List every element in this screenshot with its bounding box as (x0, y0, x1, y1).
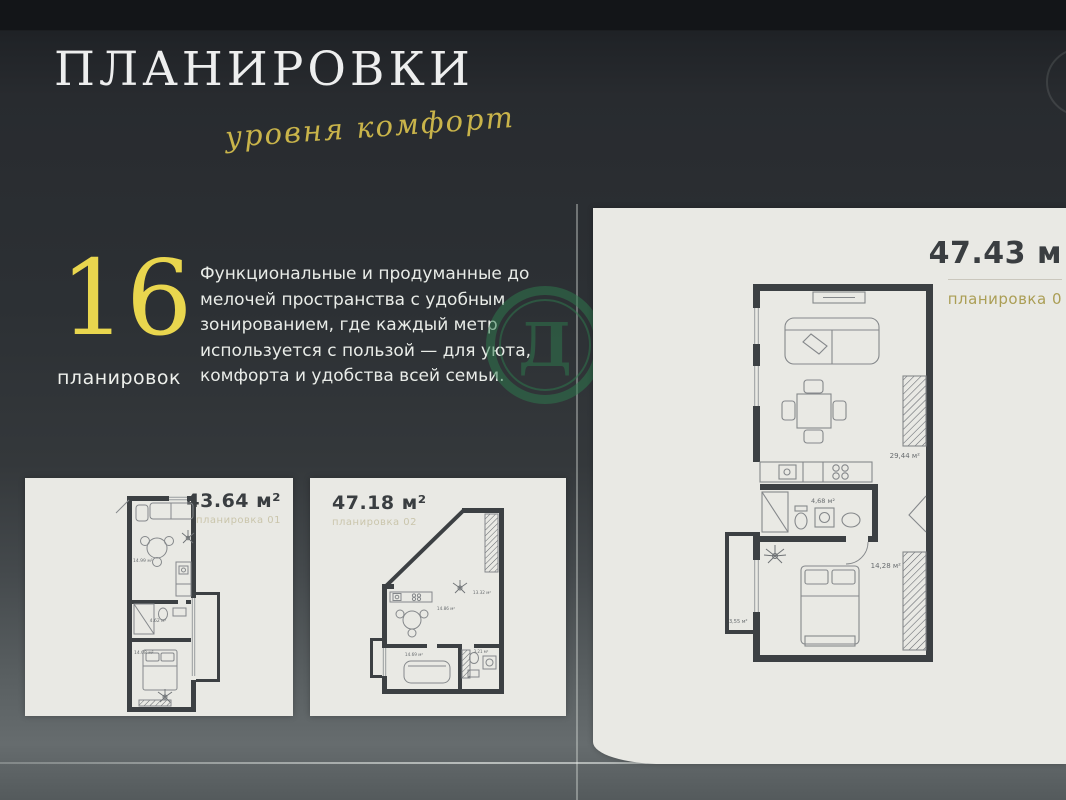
plan-02-room-bath-label: 3.21 м² (474, 649, 489, 654)
floorplan-01-drawing: 14.99 м² 4.62 м² 14.08 м² (103, 492, 223, 717)
plan-02-room-hall-label: 13.32 м² (473, 590, 491, 595)
radiator-icon (139, 700, 171, 706)
bathroom-fixtures-icon (468, 653, 496, 678)
floorplan-card-03: 47.43 м планировка 0 (593, 208, 1066, 764)
floorplan-02-drawing: 13.32 м² 14.86 м² 14.69 м² 3.21 м² (362, 506, 522, 701)
floorplan-03-header: 47.43 м планировка 0 (929, 236, 1062, 308)
kitchen-counter-icon (390, 592, 432, 602)
plan-01-room-living-label: 14.99 м² (133, 558, 153, 564)
plan-01-room-bedroom-label: 14.08 м² (134, 650, 154, 656)
bedroom-door-arc-icon (846, 542, 868, 564)
kitchen-counter-icon (760, 462, 872, 482)
plan-03-room-living-label: 29,44 м² (890, 452, 921, 460)
plan-03-area: 47.43 м (929, 236, 1062, 271)
sofa-icon (785, 318, 879, 364)
wardrobe-icon (485, 514, 498, 572)
developer-watermark: Д (486, 286, 604, 404)
wardrobe-icon (903, 552, 926, 650)
dining-table-icon (782, 380, 846, 443)
plan-02-room-bedroom-label: 14.69 м² (405, 652, 423, 657)
plan-01-room-bath-label: 4.62 м² (150, 618, 167, 624)
page-title: ПЛАНИРОВКИ (54, 42, 474, 97)
entry-door-icon (909, 496, 926, 532)
wardrobe-icon (903, 376, 926, 446)
diagonal-wall (386, 510, 464, 586)
plan-03-room-bath-label: 4,68 м² (811, 497, 835, 505)
floorplan-03-drawing: 29,44 м² 4,68 м² 14,28 м² 3,55 м² (723, 284, 943, 669)
plan-03-room-balcony-label: 3,55 м² (729, 619, 748, 625)
intro-description: Функциональные и продуманные до мелочей … (200, 262, 535, 390)
bed-icon (801, 566, 859, 646)
bed-icon (143, 650, 177, 690)
sofa-icon (136, 503, 193, 521)
plant-icon (453, 580, 467, 593)
bed-icon (404, 661, 450, 683)
wardrobe-icon (462, 650, 470, 678)
plan-02-windows (382, 648, 387, 676)
page-top-edge (0, 0, 1066, 31)
plant-icon (764, 545, 786, 563)
dining-table-icon (396, 610, 428, 637)
kitchen-counter-icon (176, 562, 191, 596)
plans-count-label: планировок (57, 367, 181, 389)
page-tagline-script: уровня комфорт (214, 99, 526, 155)
watermark-letter: Д (486, 286, 604, 404)
plan-03-variant: планировка 0 (948, 279, 1062, 308)
corner-logo-arc-icon (1046, 48, 1066, 116)
floorplan-card-02: 47.18 м² планировка 02 (310, 478, 566, 716)
tv-icon (813, 292, 865, 303)
plans-count: 16 (60, 246, 192, 350)
floorplan-card-01: 43.64 м² планировка 01 (25, 478, 293, 716)
plan-03-room-bedroom-label: 14,28 м² (871, 562, 902, 570)
plan-02-room-kitchen-label: 14.86 м² (437, 606, 455, 611)
